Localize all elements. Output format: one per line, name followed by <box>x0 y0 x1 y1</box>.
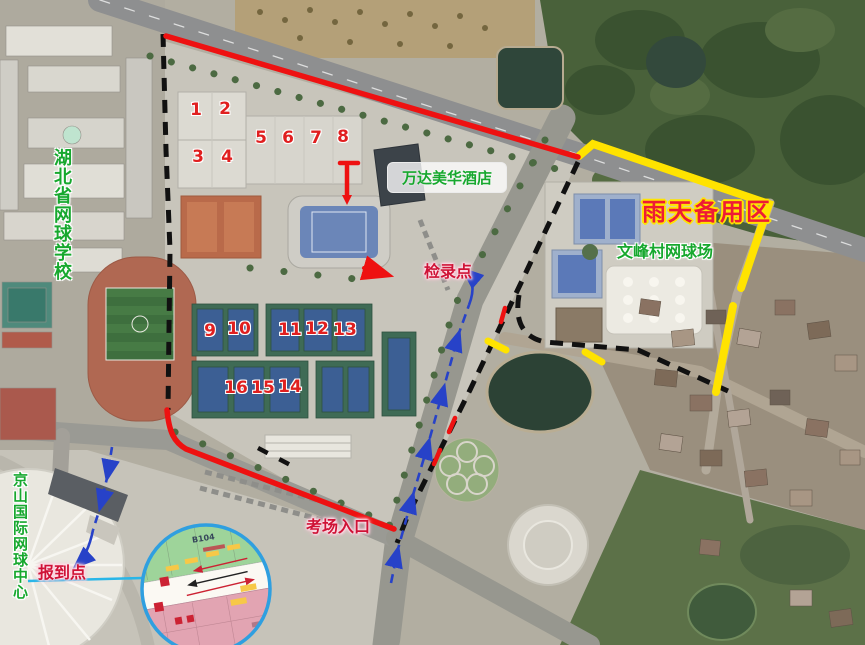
hotel-label-box: 万达美华酒店 <box>387 162 507 193</box>
court-number: 12 <box>305 319 329 339</box>
satellite-base <box>0 0 865 645</box>
court-number: 7 <box>310 128 322 148</box>
court-number: 4 <box>221 147 233 167</box>
court-number: 11 <box>278 320 302 340</box>
court-number: 3 <box>192 147 204 167</box>
court-number: 1 <box>190 100 202 120</box>
court-number: 10 <box>227 319 251 339</box>
school-label: 湖北省网球学校 <box>48 148 74 281</box>
court-number: 14 <box>278 377 302 397</box>
court-number: 9 <box>204 321 216 341</box>
check-in-label: 检录点 <box>424 258 472 282</box>
hotel-label: 万达美华酒店 <box>402 167 492 188</box>
court-number: 15 <box>251 378 275 398</box>
court-number: 5 <box>255 128 267 148</box>
football-field <box>88 257 196 421</box>
tennis-center-label: 京山国际网球中心 <box>10 472 31 600</box>
court-number: 8 <box>337 127 349 147</box>
rain-backup-label: 雨天备用区 <box>642 192 772 227</box>
court-number: 16 <box>224 378 248 398</box>
exam-entrance-label: 考场入口 <box>306 513 370 537</box>
report-point-label: 报到点 <box>38 559 86 583</box>
court-number: 2 <box>219 99 231 119</box>
court-number: 13 <box>333 320 357 340</box>
court-number: 6 <box>282 128 294 148</box>
village-courts-label: 文峰村网球场 <box>617 238 713 262</box>
annotated-satellite-map: 湖北省网球学校 京山国际网球中心 万达美华酒店 雨天备用区 文峰村网球场 检录点… <box>0 0 865 645</box>
